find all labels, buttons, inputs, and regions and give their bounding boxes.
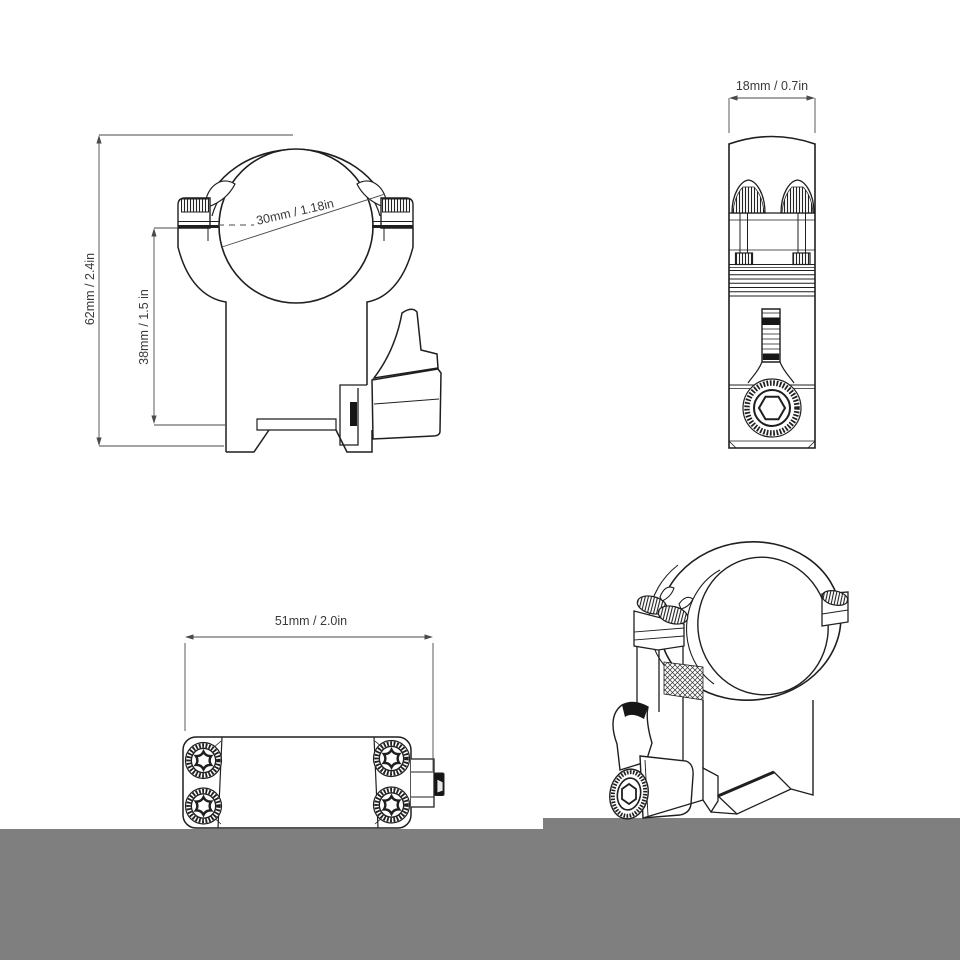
side-view: 18mm / 0.7in bbox=[729, 79, 815, 448]
clamp-jaw-dark-band bbox=[350, 402, 357, 426]
iso-qd-lever bbox=[606, 702, 693, 821]
scope-bore-circle bbox=[219, 149, 373, 303]
floor-right bbox=[543, 818, 960, 960]
front-view: 62mm / 2.4in 38mm / 1.5 in 30mm / 1.18in bbox=[83, 135, 441, 452]
torx-screw-2 bbox=[186, 788, 222, 824]
dim-label-length: 51mm / 2.0in bbox=[275, 614, 347, 628]
scope-ring-dimension-diagram: 62mm / 2.4in 38mm / 1.5 in 30mm / 1.18in bbox=[0, 0, 960, 960]
knurled-screw-left bbox=[182, 199, 209, 212]
dim-width-annotation: 18mm / 0.7in bbox=[729, 79, 815, 133]
technical-drawing-canvas: 62mm / 2.4in 38mm / 1.5 in 30mm / 1.18in bbox=[0, 0, 960, 960]
floor bbox=[0, 818, 960, 960]
dim-label-height: 62mm / 2.4in bbox=[83, 253, 97, 325]
picatinny-base bbox=[226, 385, 372, 452]
side-serrations bbox=[729, 271, 815, 297]
iso-serration-band bbox=[664, 662, 703, 700]
bottom-view: 51mm / 2.0in bbox=[183, 614, 444, 828]
perspective-view bbox=[606, 531, 850, 821]
dim-label-width: 18mm / 0.7in bbox=[736, 79, 808, 93]
qd-lever-front bbox=[372, 309, 441, 439]
torx-screw-4 bbox=[374, 787, 410, 823]
clamp-knob bbox=[411, 759, 444, 807]
dim-label-saddle-height: 38mm / 1.5 in bbox=[137, 289, 151, 365]
iso-lever-hex-socket bbox=[622, 784, 636, 804]
torx-screw-3 bbox=[374, 741, 410, 777]
iso-right-ear bbox=[821, 588, 849, 626]
torx-screw-1 bbox=[186, 743, 222, 779]
lever-hex-socket bbox=[759, 397, 785, 420]
knurled-screw-right bbox=[383, 199, 410, 212]
floor-left bbox=[0, 829, 543, 960]
